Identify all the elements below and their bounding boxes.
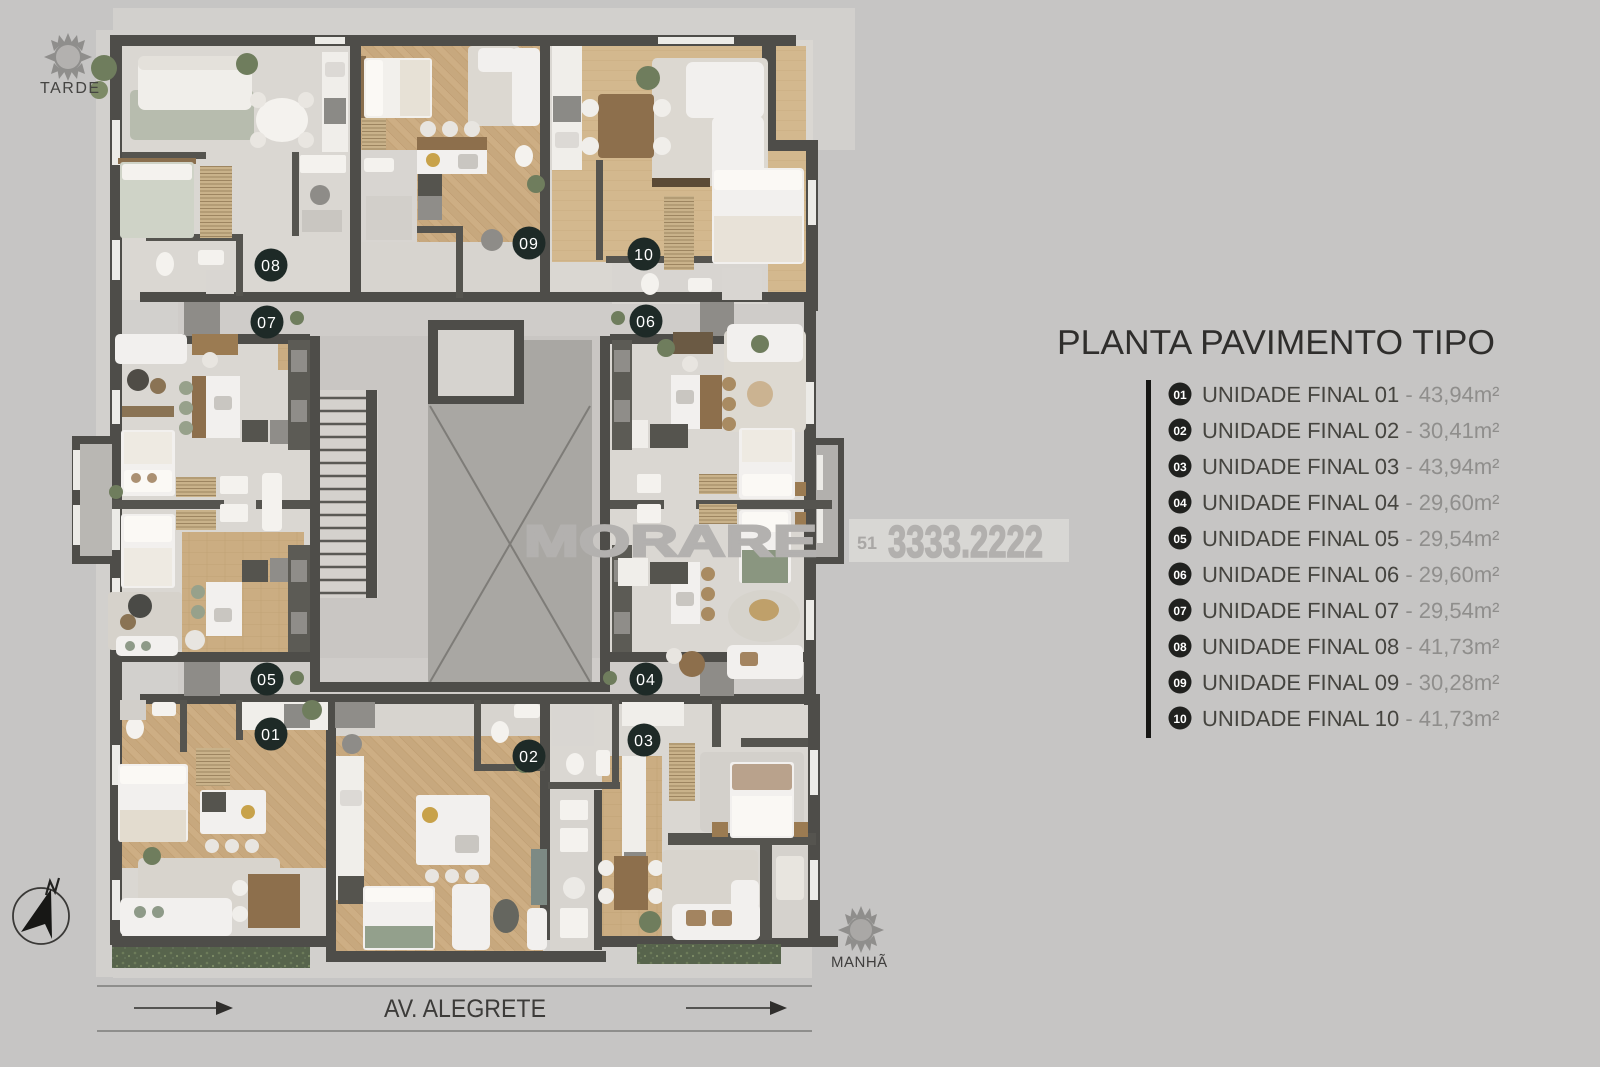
svg-text:01: 01 bbox=[1173, 388, 1187, 402]
svg-text:07: 07 bbox=[257, 315, 277, 332]
svg-text:10: 10 bbox=[634, 247, 654, 264]
svg-text:UNIDADE FINAL 03 - 43,94m²: UNIDADE FINAL 03 - 43,94m² bbox=[1202, 454, 1500, 479]
svg-text:3333.2222: 3333.2222 bbox=[888, 516, 1043, 567]
svg-text:04: 04 bbox=[636, 672, 656, 689]
svg-text:UNIDADE FINAL 10 - 41,73m²: UNIDADE FINAL 10 - 41,73m² bbox=[1202, 706, 1500, 731]
svg-text:UNIDADE FINAL 05 - 29,54m²: UNIDADE FINAL 05 - 29,54m² bbox=[1202, 526, 1500, 551]
svg-text:UNIDADE FINAL 08 - 41,73m²: UNIDADE FINAL 08 - 41,73m² bbox=[1202, 634, 1500, 659]
svg-text:09: 09 bbox=[519, 236, 539, 253]
svg-text:07: 07 bbox=[1173, 604, 1187, 618]
svg-text:UNIDADE FINAL 02 - 30,41m²: UNIDADE FINAL 02 - 30,41m² bbox=[1202, 418, 1500, 443]
svg-text:09: 09 bbox=[1173, 676, 1187, 690]
svg-text:AV. ALEGRETE: AV. ALEGRETE bbox=[384, 995, 546, 1023]
svg-text:UNIDADE FINAL 09 - 30,28m²: UNIDADE FINAL 09 - 30,28m² bbox=[1202, 670, 1500, 695]
svg-text:04: 04 bbox=[1173, 496, 1187, 510]
svg-text:08: 08 bbox=[261, 258, 281, 275]
svg-text:06: 06 bbox=[636, 314, 656, 331]
svg-text:TARDE: TARDE bbox=[40, 80, 101, 97]
svg-text:01: 01 bbox=[261, 727, 281, 744]
svg-text:UNIDADE FINAL 06 - 29,60m²: UNIDADE FINAL 06 - 29,60m² bbox=[1202, 562, 1500, 587]
svg-text:10: 10 bbox=[1173, 712, 1187, 726]
svg-text:02: 02 bbox=[519, 749, 539, 766]
svg-text:03: 03 bbox=[634, 733, 654, 750]
svg-text:08: 08 bbox=[1173, 640, 1187, 654]
svg-text:MORARE: MORARE bbox=[524, 517, 817, 566]
svg-text:UNIDADE FINAL 01 - 43,94m²: UNIDADE FINAL 01 - 43,94m² bbox=[1202, 382, 1500, 407]
svg-text:02: 02 bbox=[1173, 424, 1187, 438]
svg-text:06: 06 bbox=[1173, 568, 1187, 582]
svg-text:05: 05 bbox=[257, 672, 277, 689]
svg-text:51: 51 bbox=[857, 533, 877, 553]
svg-text:UNIDADE FINAL 04 - 29,60m²: UNIDADE FINAL 04 - 29,60m² bbox=[1202, 490, 1500, 515]
svg-text:05: 05 bbox=[1173, 532, 1187, 546]
svg-text:MANHÃ: MANHÃ bbox=[831, 953, 888, 971]
svg-text:PLANTA PAVIMENTO TIPO: PLANTA PAVIMENTO TIPO bbox=[1057, 324, 1495, 362]
svg-text:03: 03 bbox=[1173, 460, 1187, 474]
svg-text:UNIDADE FINAL 07 - 29,54m²: UNIDADE FINAL 07 - 29,54m² bbox=[1202, 598, 1500, 623]
